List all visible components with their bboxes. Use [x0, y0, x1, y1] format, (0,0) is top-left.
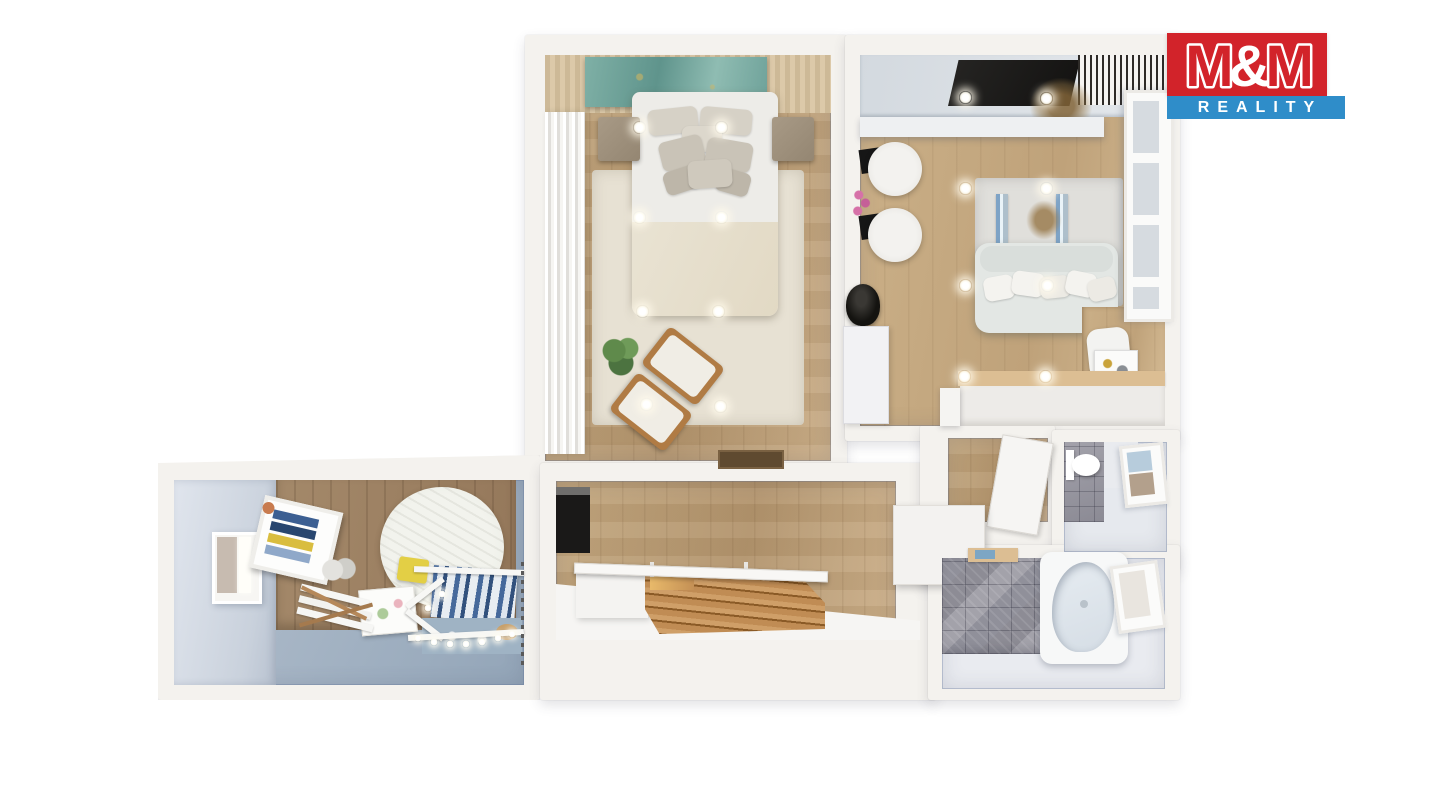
- floorplan-image: M&M REALITY: [0, 0, 1440, 810]
- ceiling-light: [1040, 92, 1053, 105]
- potted-plant: [598, 333, 644, 377]
- bathroom-tile-wall: [942, 558, 1056, 654]
- kitchen-counter-top: [958, 371, 1165, 386]
- ceiling-light: [1040, 182, 1053, 195]
- logo-mm-text: M&M: [1167, 33, 1327, 96]
- wall-cut-edge: [521, 560, 524, 665]
- window-pane: [1133, 287, 1159, 309]
- bed-throw-blanket: [632, 222, 778, 316]
- kitchen-counter-front: [960, 386, 1165, 426]
- bedroom-curtains: [545, 112, 585, 454]
- ceiling-light: [715, 121, 728, 134]
- bathroom-towel: [975, 550, 995, 559]
- flower-vase-pink: [850, 185, 872, 225]
- ceiling-light: [959, 182, 972, 195]
- ceiling-light: [712, 305, 725, 318]
- logo-reality-text: REALITY: [1190, 99, 1322, 117]
- kids-house-bed: [404, 566, 524, 664]
- fluffy-chair: [868, 208, 922, 262]
- window-pane: [1133, 225, 1159, 277]
- nightstand-right: [772, 117, 814, 161]
- ceiling-light: [959, 279, 972, 292]
- fairy-light: [478, 638, 486, 646]
- plush-toy: [320, 556, 356, 584]
- fairy-light: [438, 590, 446, 598]
- fairy-light: [424, 604, 432, 612]
- mm-reality-logo-banner: REALITY: [1167, 96, 1345, 119]
- toilet: [1072, 454, 1100, 476]
- hall-cabinet-tall: [843, 326, 889, 424]
- window-pane: [1129, 472, 1155, 496]
- drying-rack: [296, 583, 376, 641]
- ceiling-light: [636, 305, 649, 318]
- bed-pillow: [687, 158, 733, 189]
- bathroom-window: [1110, 560, 1167, 634]
- door-mat: [718, 450, 784, 469]
- fairy-light: [430, 638, 438, 646]
- fireplace: [556, 487, 590, 553]
- ceiling-light: [1039, 370, 1052, 383]
- wc-window: [1119, 442, 1169, 508]
- black-vase: [846, 284, 880, 326]
- ceiling-light: [633, 211, 646, 224]
- ceiling-light: [640, 398, 653, 411]
- sofa-backrest: [980, 246, 1113, 272]
- fairy-light: [414, 634, 422, 642]
- ceiling-light: [715, 211, 728, 224]
- dried-plant: [1026, 200, 1062, 240]
- window-pane: [1133, 163, 1159, 215]
- bathtub-faucet: [1080, 600, 1088, 608]
- kitchen-cabinet: [940, 388, 960, 426]
- ceiling-light: [958, 370, 971, 383]
- fluffy-chair: [868, 142, 922, 196]
- ceiling-light: [633, 121, 646, 134]
- window-pane: [217, 537, 237, 593]
- fairy-light: [446, 640, 454, 648]
- french-window: [1124, 90, 1174, 322]
- window-pane: [1127, 450, 1153, 472]
- ceiling-light: [959, 91, 972, 104]
- fairy-light: [462, 640, 470, 648]
- fairy-light: [494, 634, 502, 642]
- mm-reality-logo-red-block: M&M: [1167, 33, 1327, 96]
- window-pane: [1119, 570, 1151, 619]
- wall-shelf: [860, 117, 1104, 137]
- ceiling-light: [714, 400, 727, 413]
- window-pane: [1133, 101, 1159, 153]
- ceiling-light: [1041, 279, 1054, 292]
- svg-text:M&M: M&M: [1185, 34, 1310, 96]
- fairy-light: [508, 630, 516, 638]
